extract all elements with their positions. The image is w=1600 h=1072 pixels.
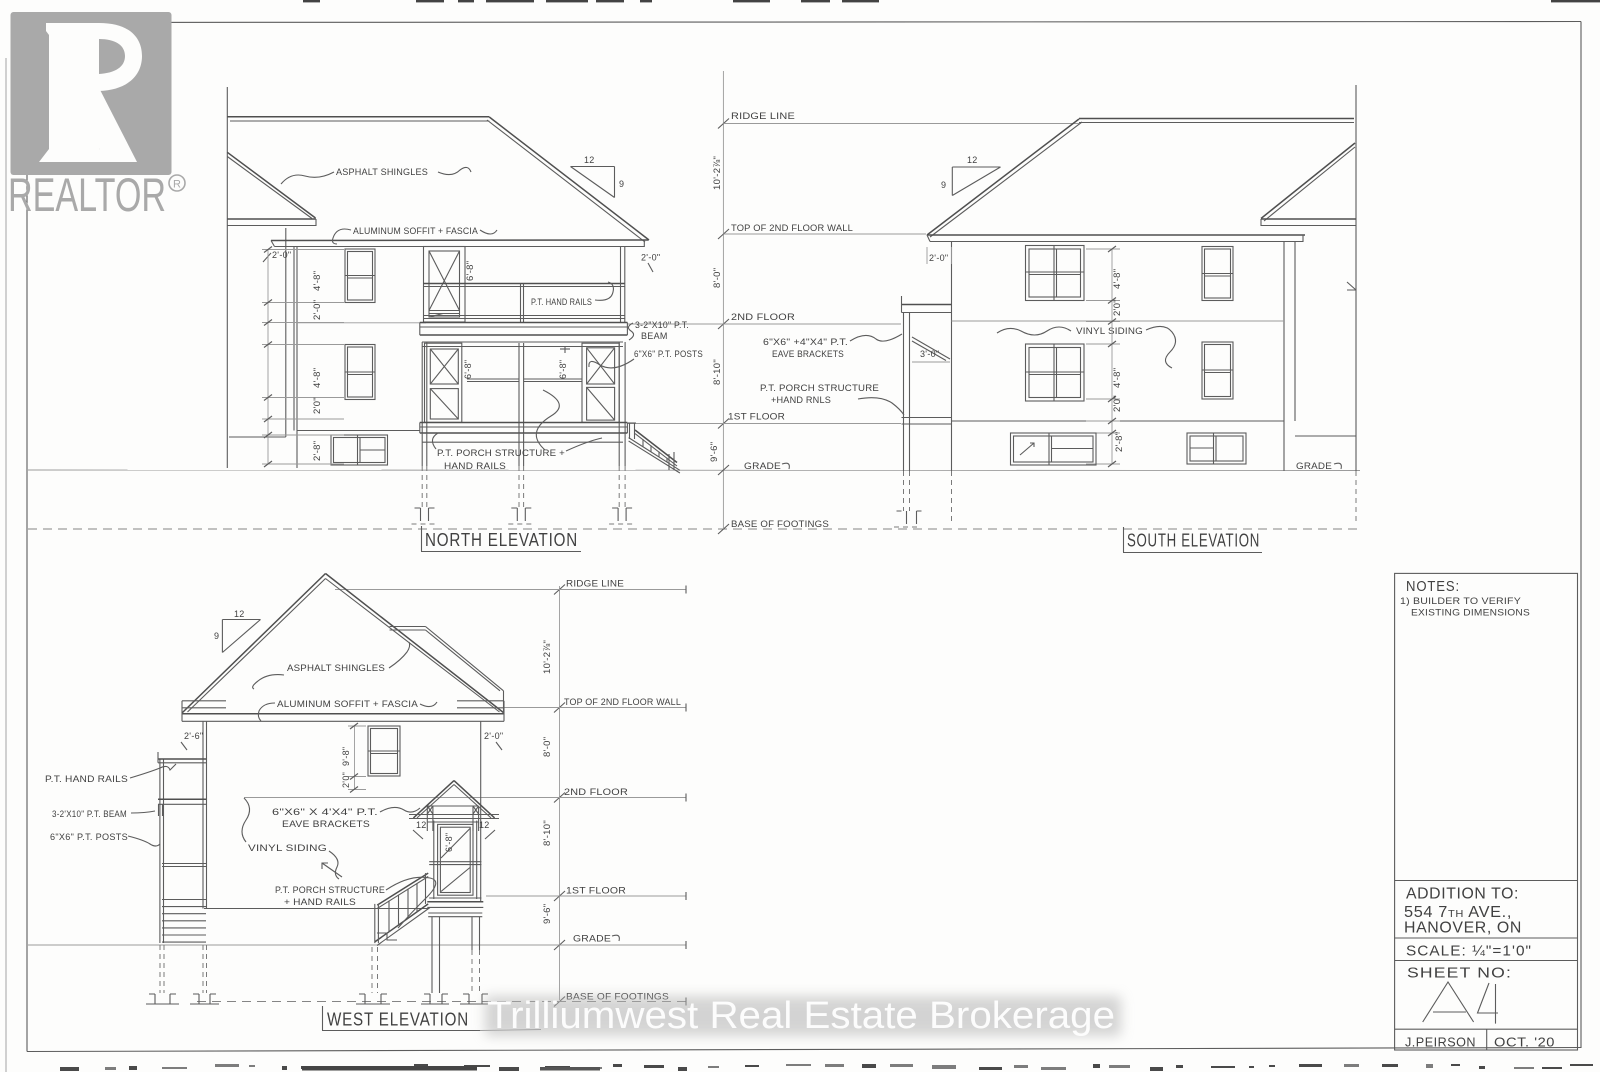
svg-text:SCALE: ¼"=1'0": SCALE: ¼"=1'0" — [1406, 943, 1532, 960]
svg-text:Trilliumwest Real Estate Broke: Trilliumwest Real Estate Brokerage — [487, 995, 1115, 1037]
svg-text:2ND FLOOR: 2ND FLOOR — [564, 787, 628, 798]
svg-text:EAVE BRACKETS: EAVE BRACKETS — [282, 819, 370, 830]
svg-text:ADDITION TO:: ADDITION TO: — [1406, 886, 1519, 903]
svg-text:2'-0": 2'-0" — [312, 300, 323, 320]
svg-text:9: 9 — [214, 631, 219, 641]
svg-text:2'-8": 2'-8" — [1114, 432, 1125, 452]
svg-text:4'-8": 4'-8" — [1112, 269, 1123, 289]
svg-text:SOUTH ELEVATION: SOUTH ELEVATION — [1127, 530, 1260, 551]
svg-text:1ST FLOOR: 1ST FLOOR — [566, 886, 626, 897]
svg-text:6"X6" X 4'X4" P.T.: 6"X6" X 4'X4" P.T. — [272, 807, 378, 818]
svg-text:2'-0": 2'-0" — [641, 253, 660, 263]
svg-text:2'-6": 2'-6" — [184, 731, 203, 741]
svg-text:P.T. PORCH STRUCTURE +: P.T. PORCH STRUCTURE + — [437, 448, 565, 459]
svg-text:NOTES:: NOTES: — [1406, 578, 1460, 595]
svg-text:2'0": 2'0" — [1112, 395, 1123, 412]
svg-text:9'-8": 9'-8" — [341, 747, 351, 766]
svg-text:3-2"X10" P.T.: 3-2"X10" P.T. — [635, 320, 689, 330]
svg-text:12: 12 — [479, 820, 490, 830]
svg-text:12: 12 — [234, 609, 245, 619]
svg-text:6"X6" +4"X4" P.T.: 6"X6" +4"X4" P.T. — [763, 337, 848, 348]
svg-text:2'-0": 2'-0" — [929, 253, 948, 263]
svg-text:R: R — [173, 179, 181, 191]
svg-text:6'-8": 6'-8" — [463, 360, 473, 379]
svg-text:ALUMINUM SOFFIT + FASCIA: ALUMINUM SOFFIT + FASCIA — [353, 226, 478, 237]
svg-text:SHEET NO:: SHEET NO: — [1407, 965, 1512, 982]
svg-text:2'-0": 2'-0" — [484, 731, 503, 741]
svg-text:4'-8": 4'-8" — [1112, 368, 1123, 388]
svg-text:+ HAND RAILS: + HAND RAILS — [284, 897, 356, 908]
svg-text:HANOVER, ON: HANOVER, ON — [1404, 920, 1522, 937]
svg-text:9: 9 — [941, 180, 946, 190]
svg-text:4'-8": 4'-8" — [312, 271, 323, 291]
svg-text:10'-2⅞": 10'-2⅞" — [712, 156, 723, 190]
svg-text:8'-10": 8'-10" — [712, 359, 723, 385]
svg-text:OCT. '20: OCT. '20 — [1494, 1035, 1555, 1050]
svg-text:3-2'X10" P.T. BEAM: 3-2'X10" P.T. BEAM — [52, 809, 127, 819]
svg-text:WEST ELEVATION: WEST ELEVATION — [327, 1009, 469, 1030]
svg-text:2'0": 2'0" — [312, 397, 323, 414]
svg-text:NORTH ELEVATION: NORTH ELEVATION — [425, 529, 578, 550]
svg-text:TOP OF 2ND FLOOR WALL: TOP OF 2ND FLOOR WALL — [731, 223, 853, 234]
svg-text:BEAM: BEAM — [641, 331, 668, 341]
svg-text:REALTOR: REALTOR — [8, 168, 166, 221]
svg-text:TOP OF 2ND FLOOR WALL: TOP OF 2ND FLOOR WALL — [564, 697, 681, 708]
svg-text:6'-8": 6'-8" — [444, 833, 454, 852]
svg-text:9'-6": 9'-6" — [542, 904, 553, 924]
svg-text:P.T. HAND RAILS: P.T. HAND RAILS — [45, 774, 128, 785]
svg-text:ASPHALT SHINGLES: ASPHALT SHINGLES — [336, 167, 428, 178]
svg-text:2'0": 2'0" — [341, 772, 351, 788]
svg-text:EXISTING DIMENSIONS: EXISTING DIMENSIONS — [1411, 608, 1530, 619]
svg-text:RIDGE LINE: RIDGE LINE — [566, 579, 624, 590]
svg-text:P.T. PORCH STRUCTURE: P.T. PORCH STRUCTURE — [760, 383, 879, 394]
svg-text:2'-0": 2'-0" — [272, 250, 291, 260]
svg-text:2'-8": 2'-8" — [312, 441, 323, 461]
svg-text:P.T. PORCH STRUCTURE: P.T. PORCH STRUCTURE — [275, 885, 385, 896]
svg-text:1) BUILDER TO VERIFY: 1) BUILDER TO VERIFY — [1400, 596, 1521, 607]
svg-text:VINYL SIDING: VINYL SIDING — [248, 843, 327, 854]
svg-text:HAND RAILS: HAND RAILS — [444, 461, 506, 472]
svg-text:2'0": 2'0" — [1112, 299, 1123, 316]
svg-text:12: 12 — [416, 820, 427, 830]
svg-text:9: 9 — [619, 179, 624, 189]
svg-text:+HAND RNLS: +HAND RNLS — [771, 395, 831, 406]
svg-text:EAVE BRACKETS: EAVE BRACKETS — [772, 349, 844, 360]
svg-text:1ST FLOOR: 1ST FLOOR — [728, 412, 785, 423]
svg-text:RIDGE LINE: RIDGE LINE — [731, 111, 795, 122]
svg-text:9'-6": 9'-6" — [709, 442, 720, 462]
svg-text:6'-8": 6'-8" — [558, 360, 568, 379]
svg-text:10'-2⅞": 10'-2⅞" — [542, 640, 553, 674]
svg-text:2ND FLOOR: 2ND FLOOR — [731, 312, 795, 323]
svg-text:12: 12 — [584, 155, 595, 165]
svg-text:6"X6" P.T. POSTS: 6"X6" P.T. POSTS — [50, 832, 128, 842]
svg-text:GRADE: GRADE — [744, 461, 781, 472]
svg-text:3'-0": 3'-0" — [920, 349, 939, 359]
svg-text:VINYL SIDING: VINYL SIDING — [1076, 326, 1143, 337]
svg-text:BASE OF FOOTINGS: BASE OF FOOTINGS — [731, 519, 829, 530]
svg-text:6"X6" P.T. POSTS: 6"X6" P.T. POSTS — [634, 349, 703, 359]
svg-text:P.T. HAND RAILS: P.T. HAND RAILS — [531, 297, 592, 308]
svg-text:GRADE: GRADE — [573, 934, 611, 945]
svg-text:8'-0": 8'-0" — [542, 737, 553, 757]
svg-text:12: 12 — [967, 155, 978, 165]
svg-text:4'-8": 4'-8" — [312, 368, 323, 388]
svg-text:8'-0": 8'-0" — [712, 268, 723, 288]
svg-text:ALUMINUM SOFFIT + FASCIA: ALUMINUM SOFFIT + FASCIA — [277, 699, 418, 710]
svg-text:8'-10": 8'-10" — [542, 820, 553, 846]
svg-text:J.PEIRSON: J.PEIRSON — [1405, 1035, 1476, 1050]
svg-text:GRADE: GRADE — [1296, 461, 1332, 472]
svg-text:ASPHALT SHINGLES: ASPHALT SHINGLES — [287, 663, 385, 674]
svg-text:6'-8": 6'-8" — [465, 261, 476, 281]
